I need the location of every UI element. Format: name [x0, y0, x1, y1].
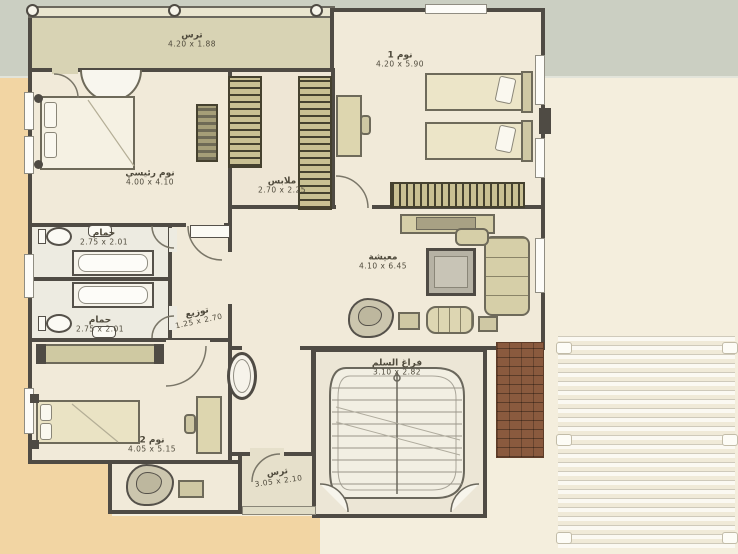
window [24, 254, 34, 298]
door-opening [52, 64, 78, 74]
bedroom1-dresser [390, 182, 525, 208]
window [425, 4, 487, 14]
room-dims: 4.05 x 5.15 [128, 446, 176, 455]
bedroom1-chair [360, 115, 371, 135]
pillow [40, 404, 52, 421]
room-dims: 2.70 x 2.25 [258, 187, 306, 196]
headboard [521, 120, 533, 162]
room-dims: 2.75 x 2.01 [80, 239, 128, 248]
railing-post [168, 4, 181, 17]
room-dims: 4.10 x 6.45 [359, 263, 407, 272]
door-opening [166, 340, 210, 348]
door-opening [250, 448, 284, 456]
bed-knob [34, 160, 43, 169]
floor-plan-canvas: ترس 4.20 x 1.88 نوم 1 4.20 x 5.90 نوم رئ… [0, 0, 738, 554]
bedroom2-chair [184, 414, 196, 434]
railing-post [310, 4, 323, 17]
side-table [478, 316, 498, 332]
bed-knob [34, 94, 43, 103]
door-opening [242, 344, 300, 352]
brick-planter [496, 342, 544, 458]
room-dims: 4.20 x 5.90 [376, 61, 424, 70]
room-dims: 4.00 x 4.10 [125, 179, 174, 188]
wardrobe [228, 76, 262, 168]
label-bedroom-2: نوم 2 4.05 x 5.15 [128, 436, 176, 455]
door-opening [336, 204, 372, 212]
window [24, 92, 34, 130]
nook-table [178, 480, 204, 498]
hall-vanity [190, 225, 230, 238]
bathtub-basin [78, 286, 148, 304]
room-dims: 2.75 x 2.01 [76, 326, 124, 335]
room-dims: 3.10 x 2.82 [372, 369, 422, 378]
pergola [558, 336, 735, 548]
label-living: معيشة 4.10 x 6.45 [359, 253, 407, 272]
sofa [484, 236, 530, 316]
armchair [455, 228, 489, 246]
label-master-bedroom: نوم رئيسي 4.00 x 4.10 [125, 169, 174, 188]
terrace-bottom-railing [242, 506, 316, 515]
door-opening [226, 252, 236, 304]
pillow [40, 423, 52, 440]
label-bathroom-2: حمام 2.75 x 2.01 [76, 316, 124, 335]
coffee-table-top [434, 256, 468, 288]
oval-column-inner [233, 359, 251, 393]
headboard [521, 71, 533, 113]
ottoman [426, 306, 474, 334]
bedroom2-desk [196, 396, 222, 454]
dresser-cap [154, 344, 164, 364]
bedroom1-desk [336, 95, 362, 157]
pergola-post [722, 342, 738, 354]
window [535, 138, 545, 178]
door-opening [169, 228, 177, 252]
pillow [44, 132, 57, 158]
pergola-post [556, 434, 572, 446]
toilet-tank [38, 229, 46, 244]
side-table [398, 312, 420, 330]
window [535, 55, 545, 105]
label-stairwell: فراغ السلم 3.10 x 2.82 [372, 359, 422, 378]
bathtub-basin [78, 254, 148, 272]
label-bathroom-1: حمام 2.75 x 2.01 [80, 229, 128, 248]
toilet [46, 227, 72, 246]
pergola-post [556, 342, 572, 354]
label-terrace-top: ترس 4.20 x 1.88 [168, 31, 216, 50]
pergola-post [722, 434, 738, 446]
bottom-margin [0, 516, 320, 554]
bedroom2-dresser [36, 344, 164, 364]
window [535, 238, 545, 293]
pillow [44, 102, 57, 128]
wall-pier [539, 108, 551, 134]
railing-post [26, 4, 39, 17]
toilet-tank [38, 316, 46, 331]
pergola-post [556, 532, 572, 544]
terrace-railing [28, 6, 335, 18]
master-dresser [196, 104, 218, 162]
bed-knob [30, 394, 39, 403]
dresser-cap [36, 344, 46, 364]
bed-knob [30, 440, 39, 449]
pergola-post [722, 532, 738, 544]
window [24, 136, 34, 174]
label-closet: ملابس 2.70 x 2.25 [258, 177, 306, 196]
label-bedroom-1: نوم 1 4.20 x 5.90 [376, 51, 424, 70]
toilet [46, 314, 72, 333]
room-dims: 4.20 x 1.88 [168, 41, 216, 50]
